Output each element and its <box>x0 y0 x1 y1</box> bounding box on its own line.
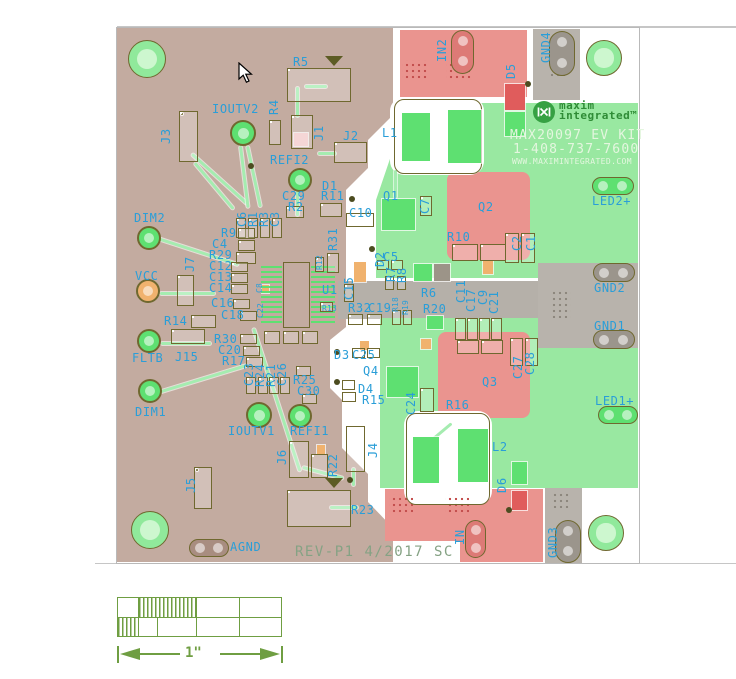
label-R23: R23 <box>351 504 374 516</box>
smd-part <box>342 380 355 390</box>
smd-part <box>455 318 466 340</box>
label-D5: D5 <box>505 63 517 79</box>
label-LED2+: LED2+ <box>592 195 631 207</box>
pad-hole <box>617 181 627 191</box>
label-R10: R10 <box>447 231 470 243</box>
label-C26: C26 <box>276 363 288 386</box>
label-GND4: GND4 <box>540 32 552 63</box>
label-FLTB: FLTB <box>132 352 163 364</box>
smd-part <box>452 244 478 261</box>
mouse-cursor <box>238 62 256 84</box>
label-J1: J1 <box>313 125 325 141</box>
via-stitch-patch <box>552 492 570 508</box>
kit-website: WWW.MAXIMINTEGRATED.COM <box>512 158 632 166</box>
scale-bar <box>117 597 282 637</box>
pad-rect <box>317 445 325 454</box>
smd-part <box>327 253 339 273</box>
scale-cell <box>158 618 198 636</box>
pad <box>196 469 198 471</box>
pad-hole <box>599 268 609 278</box>
label-J4: J4 <box>367 442 379 458</box>
scale-arrow: 1" <box>117 644 283 664</box>
label-R15: R15 <box>362 394 385 406</box>
smd-part <box>231 284 248 294</box>
smd-part <box>302 331 318 344</box>
label-C18: C18 <box>221 309 244 321</box>
pad-hole <box>618 268 628 278</box>
label-GND2: GND2 <box>594 282 625 294</box>
label-C8: C8 <box>256 283 264 293</box>
smd-part <box>320 203 342 217</box>
pad-rect <box>448 110 481 163</box>
smd-part <box>392 310 401 325</box>
hole-center <box>594 48 613 67</box>
pad-rect <box>413 437 439 483</box>
smd-part <box>457 340 479 354</box>
smd-part <box>231 262 248 272</box>
label-Q1: Q1 <box>383 190 399 202</box>
pad-hole <box>213 543 223 553</box>
pad-hole <box>471 525 481 535</box>
pad-rect <box>505 84 525 110</box>
smd-part <box>231 273 248 283</box>
label-C30: C30 <box>297 385 320 397</box>
label-REFI2: REFI2 <box>270 154 309 166</box>
mounting-hole <box>128 40 166 78</box>
pad-center <box>143 286 153 296</box>
label-L1: L1 <box>382 127 398 139</box>
pad-hole <box>458 36 468 46</box>
label-Q3: Q3 <box>482 376 498 388</box>
label-J3: J3 <box>160 128 172 144</box>
smd-part <box>346 426 365 472</box>
pad-hole <box>471 543 481 553</box>
smd-part <box>238 240 255 251</box>
testpoint-IOUTV2 <box>230 120 256 146</box>
smd-part <box>191 315 216 328</box>
pad-rect <box>458 429 488 482</box>
logo-wordmark-line2: integrated™ <box>559 110 637 121</box>
label-LED1+: LED1+ <box>595 395 634 407</box>
smd-part <box>367 314 382 325</box>
pad-rect <box>512 491 527 510</box>
testpoint-DIM2 <box>137 226 161 250</box>
label-REFI1: REFI1 <box>290 425 329 437</box>
hole-center <box>137 49 157 69</box>
label-IN2: IN2 <box>436 39 448 62</box>
oval-pad-AGND <box>189 539 229 557</box>
oval-pad-IN <box>465 520 486 558</box>
mounting-hole <box>588 515 624 551</box>
smd-part <box>287 490 351 527</box>
label-C14: C14 <box>209 282 232 294</box>
smd-part <box>467 318 478 340</box>
mounting-hole <box>586 40 622 76</box>
label-IN: IN <box>454 529 466 545</box>
pad-center <box>295 411 305 421</box>
pcb-layout-view: R5IOUTV2REFI2J2L1D1R11C29R2C10Q1Q2R9C4R2… <box>0 0 736 679</box>
via <box>334 379 340 385</box>
via-stitch-patch <box>551 290 571 318</box>
smd-part <box>291 115 313 149</box>
kit-phone: 1-408-737-7600 <box>513 143 639 156</box>
label-R4: R4 <box>268 99 280 115</box>
label-J7: J7 <box>184 256 196 272</box>
label-D3: D3 <box>334 349 350 361</box>
smd-part <box>171 329 205 344</box>
smd-part <box>480 244 506 261</box>
pad-rect <box>434 264 450 281</box>
kit-title: MAX20097 EV KIT <box>510 129 645 142</box>
label-R11: R11 <box>321 190 344 202</box>
label-R14: R14 <box>164 315 187 327</box>
label-R16: R16 <box>446 399 469 411</box>
pad-hole <box>557 37 567 47</box>
scale-cell <box>240 618 281 636</box>
pad-rect <box>421 339 431 349</box>
smd-part <box>481 340 503 354</box>
label-J15: J15 <box>175 351 198 363</box>
label-VCC: VCC <box>135 270 158 282</box>
oval-pad-GND2 <box>593 263 635 282</box>
pad-rect <box>382 199 415 230</box>
smd-part <box>179 111 198 162</box>
label-R8: R8 <box>396 267 408 283</box>
u1-ic-body <box>283 262 310 328</box>
label-Q4: Q4 <box>363 365 379 377</box>
label-D2: D2 <box>374 251 386 267</box>
label-C24: C24 <box>405 392 417 415</box>
label-IOUTV2: IOUTV2 <box>212 103 259 115</box>
pad-center <box>145 386 155 396</box>
label-C1: C1 <box>525 235 537 251</box>
smd-part <box>342 392 356 402</box>
label-R20: R20 <box>423 303 446 315</box>
label-C7: C7 <box>419 198 431 214</box>
pad-rect <box>427 316 443 329</box>
label-C2: C2 <box>511 235 523 251</box>
via <box>347 477 353 483</box>
rev-text: REV-P1 4/2017 SC <box>295 544 454 560</box>
pad-hole <box>458 56 468 66</box>
testpoint-DIM1 <box>138 379 162 403</box>
smd-part <box>238 228 255 239</box>
label-R19: R19 <box>402 300 410 315</box>
label-R13: R13 <box>322 305 337 313</box>
via <box>248 163 254 169</box>
pad-center <box>238 128 249 139</box>
mounting-hole <box>131 511 169 549</box>
maxim-logo-icon <box>532 100 556 124</box>
scale-cell <box>139 618 158 636</box>
pad-rect <box>414 264 432 281</box>
label-L2: L2 <box>492 441 508 453</box>
label-AGND: AGND <box>230 541 261 553</box>
pad-hole <box>557 58 567 68</box>
pad-hole <box>598 181 608 191</box>
label-C28: C28 <box>524 352 536 375</box>
smd-part <box>491 318 502 340</box>
label-J2: J2 <box>343 130 359 142</box>
smd-part <box>283 331 299 344</box>
pad-center <box>295 175 305 185</box>
label-J6: J6 <box>276 449 288 465</box>
label-C22: C22 <box>257 303 265 318</box>
label-C10: C10 <box>349 207 372 219</box>
via <box>349 196 355 202</box>
pad-center <box>144 336 154 346</box>
hole-center <box>596 523 615 542</box>
smd-part <box>243 346 260 356</box>
label-GND3: GND3 <box>547 527 559 558</box>
scale-cell <box>139 598 197 617</box>
label-GND1: GND1 <box>594 320 625 332</box>
pad-hole <box>195 543 205 553</box>
pad-hole <box>563 526 573 536</box>
hole-center <box>140 520 160 540</box>
label-R6: R6 <box>421 287 437 299</box>
via <box>506 507 512 513</box>
label-Q2: Q2 <box>478 201 494 213</box>
smd-part <box>269 120 281 145</box>
label-R18: R18 <box>392 297 400 312</box>
scale-cell <box>197 618 239 636</box>
scale-cell <box>197 598 239 617</box>
triangle-marker <box>325 56 343 66</box>
label-J5: J5 <box>185 477 197 493</box>
oval-pad-IN2 <box>451 30 474 74</box>
smd-part <box>287 68 351 102</box>
smd-part <box>420 388 434 412</box>
scale-label: 1" <box>185 645 202 661</box>
label-C25: C25 <box>352 349 375 361</box>
label-R22: R22 <box>327 454 339 477</box>
label-C21: C21 <box>488 291 500 314</box>
pad-hole <box>563 546 573 556</box>
label-U1: U1 <box>322 284 338 296</box>
smd-part <box>264 331 280 344</box>
pad-rect <box>402 113 430 161</box>
via-stitch-patch <box>402 60 428 80</box>
label-R12: R12 <box>316 255 324 270</box>
label-IOUTV1: IOUTV1 <box>228 425 275 437</box>
smd-part <box>479 318 490 340</box>
pad-rect <box>483 261 493 274</box>
triangle-marker <box>325 478 343 488</box>
pad-hole <box>622 410 632 420</box>
label-C15: C15 <box>343 277 355 300</box>
label-R5: R5 <box>293 56 309 68</box>
smd-part <box>177 275 194 306</box>
pad <box>181 113 183 115</box>
testpoint-FLTB <box>137 329 161 353</box>
oval-pad-LED2+ <box>592 177 634 195</box>
smd-part <box>240 334 257 344</box>
oval-pad-LED1+ <box>598 406 638 424</box>
scale-cell <box>240 598 281 617</box>
pad-hole <box>604 410 614 420</box>
label-DIM1: DIM1 <box>135 406 166 418</box>
label-C3: C3 <box>269 211 281 227</box>
label-R31: R31 <box>327 228 339 251</box>
smd-part <box>289 441 309 478</box>
label-R2: R2 <box>288 201 304 213</box>
via <box>525 81 531 87</box>
pad-center <box>254 410 265 421</box>
scale-cell <box>118 598 139 617</box>
pad-center <box>144 233 154 243</box>
scale-cell <box>118 618 139 636</box>
pad-rect <box>512 462 527 484</box>
smd-part <box>348 314 363 325</box>
label-DIM2: DIM2 <box>134 212 165 224</box>
label-C19: C19 <box>368 302 391 314</box>
smd-part <box>334 142 367 163</box>
label-D6: D6 <box>496 477 508 493</box>
pad-hole <box>618 335 628 345</box>
pad-hole <box>599 335 609 345</box>
